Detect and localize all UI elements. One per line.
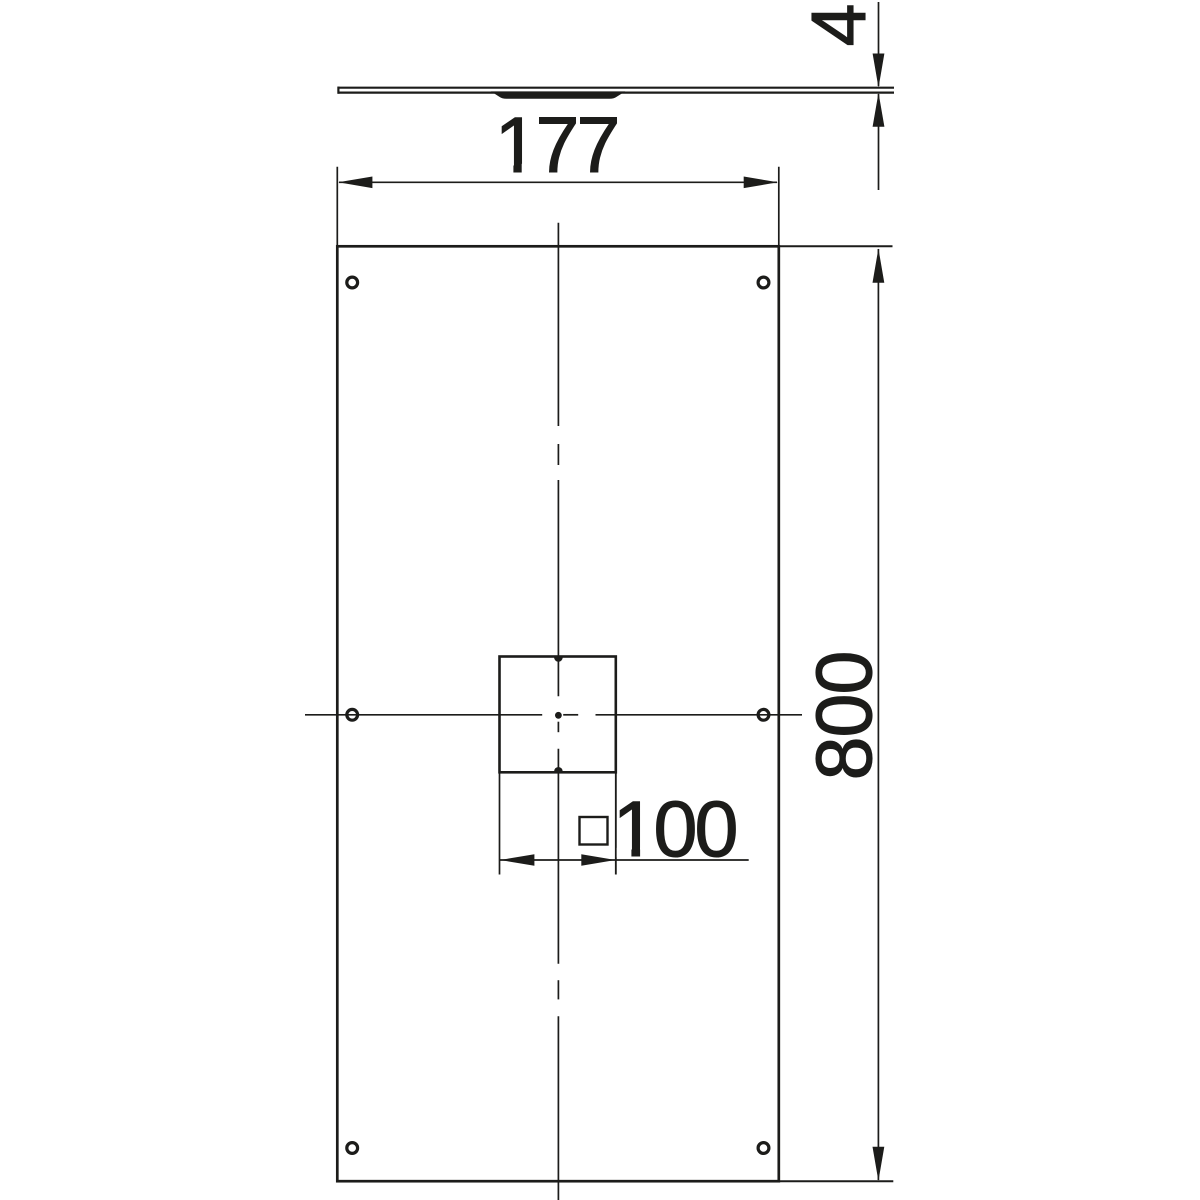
svg-text:4: 4 [796, 4, 882, 47]
svg-text:100: 100 [613, 784, 736, 873]
svg-text:800: 800 [799, 652, 888, 781]
svg-text:177: 177 [495, 100, 618, 189]
